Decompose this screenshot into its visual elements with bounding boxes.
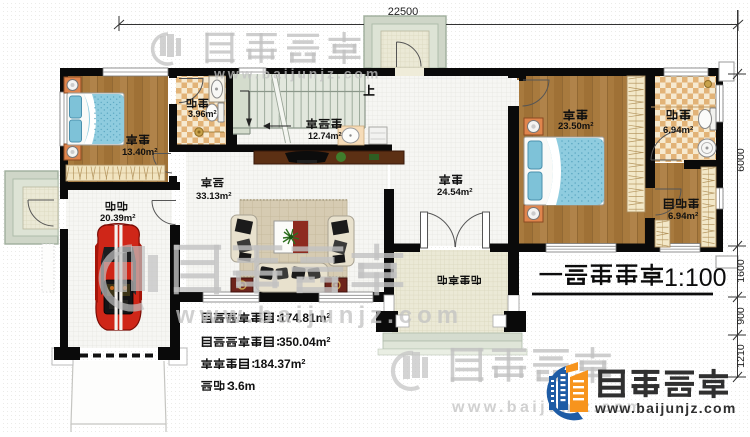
svg-text:www.baijunjz.com: www.baijunjz.com	[213, 66, 381, 82]
svg-text:6.94m2: 6.94m2	[663, 125, 694, 136]
svg-text:24.54m2: 24.54m2	[437, 187, 473, 198]
svg-text:13.40m2: 13.40m2	[122, 147, 158, 158]
svg-text:3.96m2: 3.96m2	[188, 109, 217, 119]
svg-text:900: 900	[735, 307, 747, 325]
svg-text:www.baijunjz.com: www.baijunjz.com	[594, 400, 737, 416]
svg-text:1600: 1600	[735, 259, 747, 283]
svg-text:23.50m2: 23.50m2	[558, 121, 594, 132]
svg-text:6000: 6000	[735, 148, 747, 172]
svg-text:12.74m2: 12.74m2	[308, 131, 342, 141]
svg-text:22500: 22500	[388, 6, 419, 18]
svg-text:6.94m2: 6.94m2	[668, 211, 699, 222]
svg-text:20.39m2: 20.39m2	[100, 213, 136, 224]
svg-text:1210: 1210	[735, 344, 747, 368]
svg-text:350.04m2: 350.04m2	[279, 335, 331, 349]
svg-text:3.6m: 3.6m	[228, 379, 255, 393]
svg-text:184.37m2: 184.37m2	[254, 357, 306, 371]
svg-text:www.baijunjz.com: www.baijunjz.com	[175, 302, 463, 329]
svg-text:33.13m2: 33.13m2	[196, 191, 232, 202]
svg-text:1:100: 1:100	[664, 264, 727, 292]
